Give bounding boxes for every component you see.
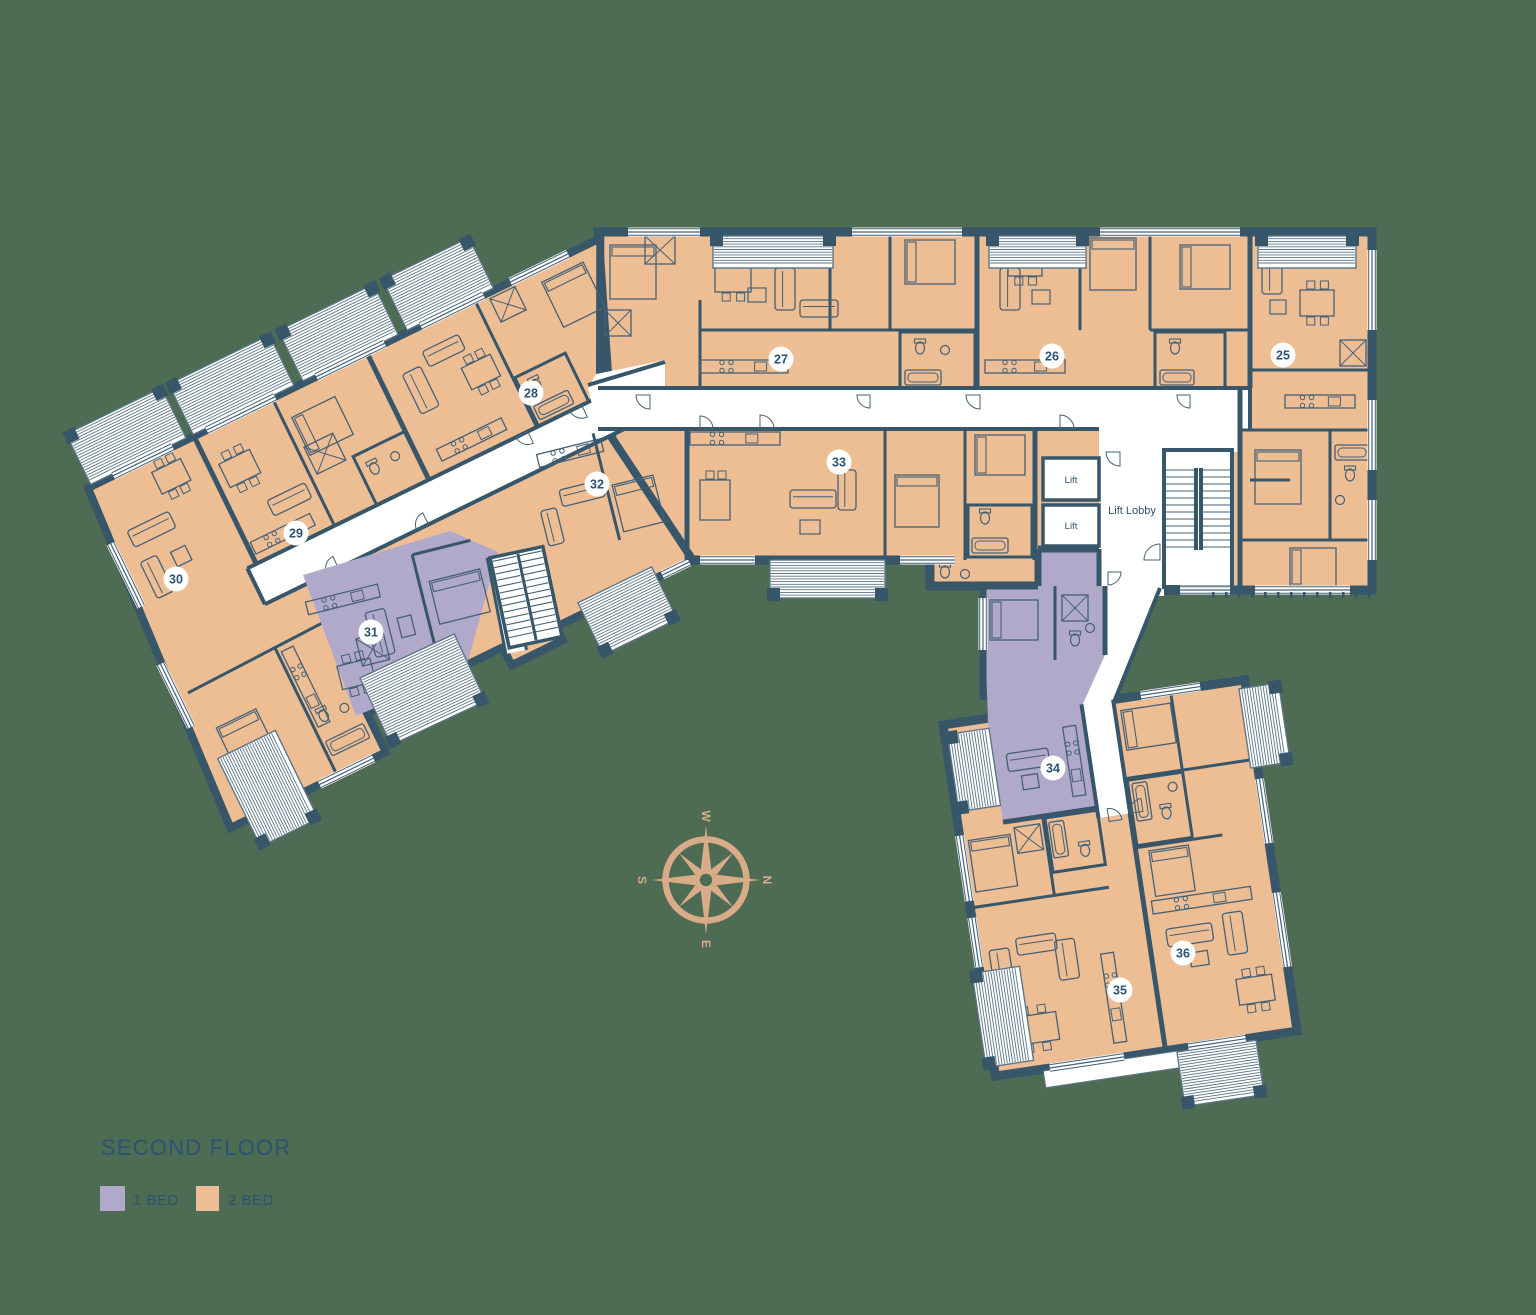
svg-text:Lift: Lift xyxy=(1065,521,1078,532)
svg-text:E: E xyxy=(699,940,713,948)
svg-text:34: 34 xyxy=(1046,762,1060,776)
svg-text:SECOND FLOOR: SECOND FLOOR xyxy=(101,1135,291,1160)
svg-text:W: W xyxy=(699,810,713,822)
svg-text:N: N xyxy=(760,876,774,885)
svg-text:Lift: Lift xyxy=(1065,475,1078,486)
svg-text:35: 35 xyxy=(1113,984,1127,998)
svg-text:31: 31 xyxy=(364,626,378,640)
svg-text:Lift Lobby: Lift Lobby xyxy=(1108,505,1156,517)
svg-text:1 BED: 1 BED xyxy=(133,1192,179,1209)
svg-text:29: 29 xyxy=(289,527,303,541)
svg-text:26: 26 xyxy=(1045,350,1059,364)
svg-text:32: 32 xyxy=(590,478,604,492)
svg-text:33: 33 xyxy=(832,456,846,470)
svg-text:36: 36 xyxy=(1176,947,1190,961)
svg-text:28: 28 xyxy=(524,387,538,401)
svg-text:25: 25 xyxy=(1276,349,1290,363)
svg-text:S: S xyxy=(635,876,649,884)
svg-text:2 BED: 2 BED xyxy=(228,1192,274,1209)
svg-text:27: 27 xyxy=(774,353,788,367)
svg-text:30: 30 xyxy=(169,573,183,587)
